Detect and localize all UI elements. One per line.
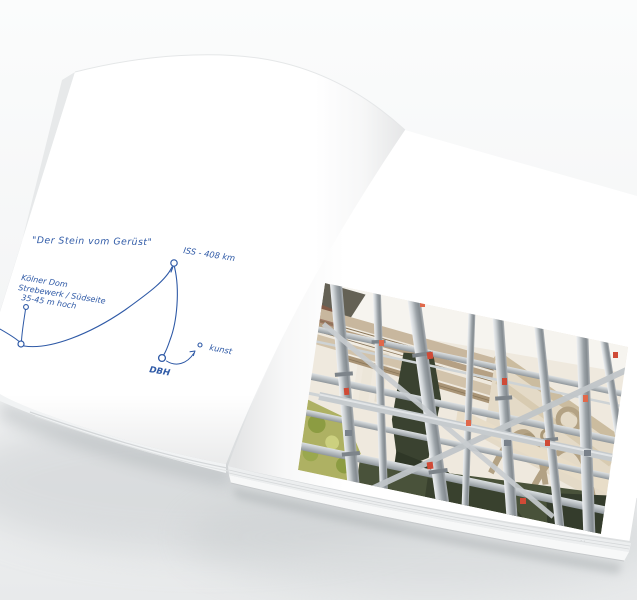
clamp-red [427, 462, 434, 470]
clamp-red [379, 340, 384, 346]
clamp-red [427, 352, 434, 360]
clamp-red [344, 388, 350, 395]
joint-block [345, 430, 352, 436]
clamp-red [502, 378, 507, 385]
clamp-red [545, 440, 550, 446]
book-mockup-scene: · · "Der Stein vom Gerüst" ISS - 408 km … [0, 0, 637, 600]
clamp-red [583, 395, 588, 402]
joint-block [504, 440, 511, 446]
clamp-red [520, 498, 526, 504]
book-mockup-graphic: · · "Der Stein vom Gerüst" ISS - 408 km … [0, 0, 637, 600]
clamp-red [613, 352, 618, 358]
quote-label: "Der Stein vom Gerüst" [32, 235, 152, 248]
clamp-red [466, 420, 471, 426]
joint-block [584, 450, 591, 456]
